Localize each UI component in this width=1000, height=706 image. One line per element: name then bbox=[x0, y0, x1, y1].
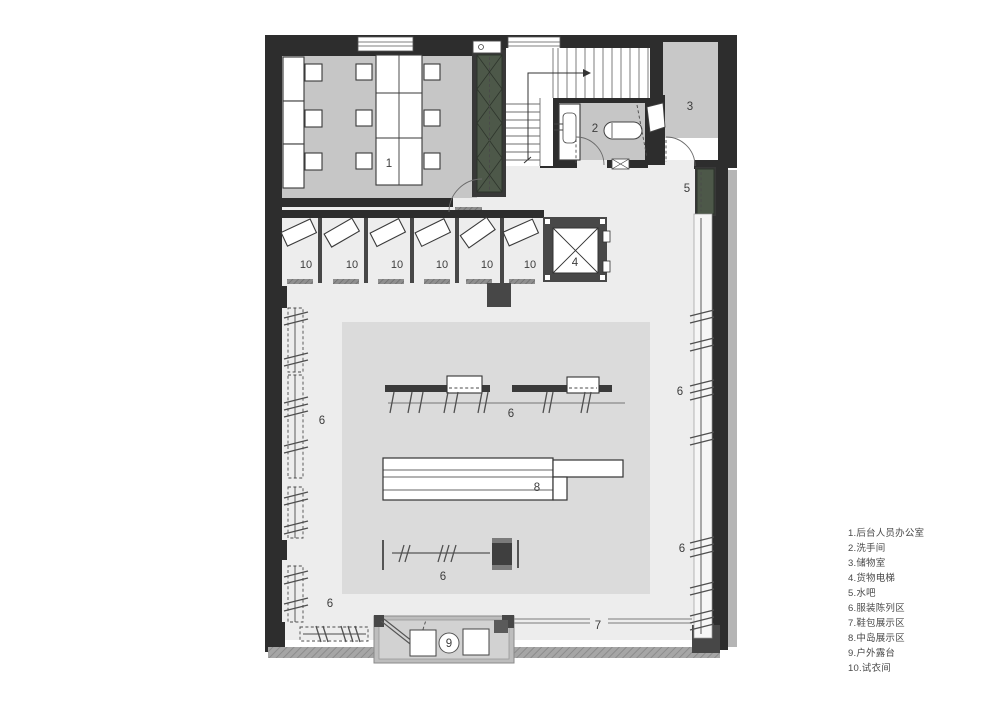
office-desk-cluster bbox=[356, 55, 440, 185]
water-bar-cabinet bbox=[695, 167, 716, 216]
label-clothing-right-upper: 6 bbox=[677, 386, 683, 398]
legend-item-terrace: 9.户外露台 bbox=[848, 646, 924, 661]
label-fitting-5: 10 bbox=[481, 259, 493, 271]
label-terrace: 9 bbox=[446, 638, 452, 650]
legend-item-shoe-bag-display: 7.鞋包展示区 bbox=[848, 616, 924, 631]
label-clothing-left-upper: 6 bbox=[319, 415, 325, 427]
planter bbox=[494, 620, 508, 633]
legend-item-clothing-display: 6.服装陈列区 bbox=[848, 601, 924, 616]
label-fitting-1: 10 bbox=[300, 259, 312, 271]
floor-drain bbox=[612, 159, 629, 169]
label-water-bar: 5 bbox=[684, 183, 690, 195]
label-clothing-right-lower: 6 bbox=[679, 543, 685, 555]
legend-item-island-display: 8.中岛展示区 bbox=[848, 631, 924, 646]
office-desk-row-left bbox=[283, 57, 322, 188]
label-clothing-left-lower: 6 bbox=[327, 598, 333, 610]
legend-item-office: 1.后台人员办公室 bbox=[848, 526, 924, 541]
corner-basin bbox=[647, 103, 665, 132]
cargo-elevator bbox=[543, 217, 610, 282]
label-shoe-bag: 7 bbox=[595, 620, 601, 632]
terrace-table bbox=[410, 630, 436, 656]
floor-plan-page: 1 2 3 4 5 6 6 6 6 6 6 7 8 9 10 10 10 10 … bbox=[0, 0, 1000, 706]
label-island: 8 bbox=[534, 482, 540, 494]
legend: 1.后台人员办公室 2.洗手间 3.储物室 4.货物电梯 5.水吧 6.服装陈列… bbox=[848, 526, 924, 676]
label-clothing-lower: 6 bbox=[440, 571, 446, 583]
label-fitting-4: 10 bbox=[436, 259, 448, 271]
legend-item-restroom: 2.洗手间 bbox=[848, 541, 924, 556]
legend-item-water-bar: 5.水吧 bbox=[848, 586, 924, 601]
terrace bbox=[374, 615, 514, 663]
terrace-table bbox=[463, 629, 489, 655]
label-fitting-3: 10 bbox=[391, 259, 403, 271]
label-restroom: 2 bbox=[592, 123, 598, 135]
legend-item-fitting-room: 10.试衣间 bbox=[848, 661, 924, 676]
label-elevator: 4 bbox=[572, 257, 579, 269]
label-storage: 3 bbox=[687, 101, 693, 113]
toilet bbox=[604, 122, 642, 139]
label-office: 1 bbox=[386, 158, 392, 170]
label-clothing-center: 6 bbox=[508, 408, 514, 420]
legend-item-cargo-elevator: 4.货物电梯 bbox=[848, 571, 924, 586]
office-wardrobe-cabinet bbox=[472, 50, 506, 197]
label-fitting-2: 10 bbox=[346, 259, 358, 271]
storage-floor bbox=[663, 42, 718, 138]
label-fitting-6: 10 bbox=[524, 259, 536, 271]
window-top-left bbox=[358, 37, 413, 51]
office-closet bbox=[473, 41, 501, 53]
legend-item-storage: 3.储物室 bbox=[848, 556, 924, 571]
column bbox=[487, 283, 511, 307]
